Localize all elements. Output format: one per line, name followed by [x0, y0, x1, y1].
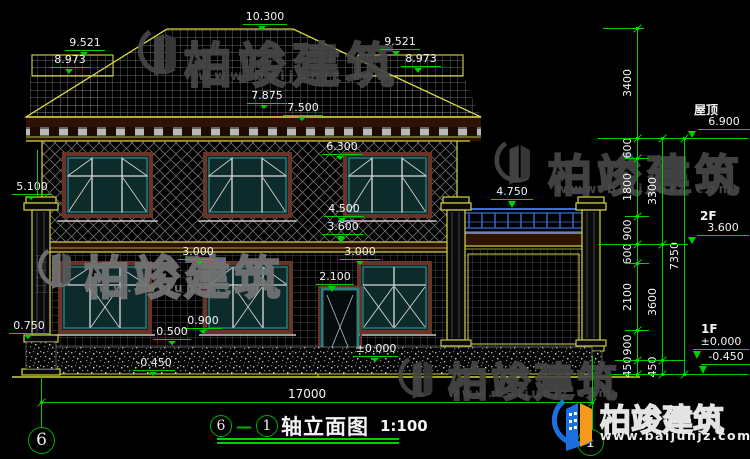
- elevation-marker: 3.600: [323, 221, 363, 235]
- elevation-value: 3.600: [323, 221, 363, 235]
- elevation-marker: 7.875: [247, 90, 287, 104]
- elevation-marker: 10.300: [243, 11, 287, 25]
- elevation-marker: -0.450: [701, 351, 750, 365]
- dim-connector-line: [598, 244, 688, 245]
- drawing-scale: 1:100: [380, 417, 428, 435]
- dim-value-vertical: 1800: [622, 165, 634, 209]
- elevation-triangle: [693, 351, 701, 359]
- dim-value-vertical: 450: [647, 345, 659, 389]
- elevation-triangle: [336, 156, 344, 160]
- elevation-triangle: [356, 261, 364, 265]
- elevation-value: 0.750: [9, 320, 49, 334]
- elevation-marker: 2.100: [316, 271, 354, 285]
- elevation-value: 9.521: [380, 36, 420, 50]
- elevation-value: 4.750: [491, 186, 533, 200]
- elevation-value: ±0.000: [693, 336, 749, 350]
- dim-value-vertical: 3600: [647, 280, 659, 324]
- elevation-marker: 8.973: [50, 54, 90, 68]
- elevation-value: 3.000: [178, 246, 218, 260]
- elevation-marker: -0.450: [133, 357, 175, 371]
- dim-connector-line: [612, 374, 748, 375]
- extension-line: [37, 150, 38, 196]
- elevation-value: 6.900: [698, 116, 750, 130]
- elevation-value: 2.100: [316, 271, 354, 285]
- elevation-triangle: [149, 372, 157, 376]
- elevation-value: 3.600: [697, 222, 749, 236]
- elevation-triangle: [392, 51, 400, 56]
- dim-value-vertical: 3400: [622, 61, 634, 105]
- elevation-triangle: [371, 358, 379, 362]
- dim-tick-dot: [40, 401, 43, 404]
- elevation-triangle: [688, 237, 696, 244]
- elevation-triangle: [65, 69, 73, 74]
- elevation-marker: 8.973: [401, 53, 441, 67]
- elevation-marker: 3.600: [697, 222, 749, 236]
- elevation-triangle: [508, 201, 516, 208]
- elevation-marker: 0.750: [9, 320, 49, 334]
- elevation-triangle: [258, 26, 266, 30]
- elevation-marker: 6.300: [322, 141, 362, 155]
- elevation-triangle: [199, 330, 207, 334]
- elevation-triangle: [328, 286, 336, 292]
- elevation-marker: ±0.000: [354, 343, 398, 357]
- elevation-value: 0.500: [153, 326, 191, 340]
- elevation-marker: 9.521: [65, 37, 105, 51]
- dim-connector-line: [625, 158, 649, 159]
- dim-value-vertical: 3300: [647, 169, 659, 213]
- brand-logo-block: 柏竣建筑 www.baijunjz.com: [548, 389, 750, 459]
- elevation-marker: 4.750: [491, 186, 533, 200]
- axis-bubble-1: 1: [256, 415, 278, 437]
- brand-logo-icon: [552, 393, 600, 455]
- elevation-marker: 9.521: [380, 36, 420, 50]
- dim-connector-line: [615, 360, 685, 361]
- elevation-value: 4.500: [324, 203, 364, 217]
- elevation-triangle: [24, 335, 32, 339]
- axis-dash: —: [236, 417, 252, 436]
- dim-connector-line: [603, 28, 643, 29]
- elevation-value: 6.300: [322, 141, 362, 155]
- elevation-value: -0.450: [133, 357, 175, 371]
- elevation-triangle: [337, 236, 345, 244]
- level-label: 2F: [700, 209, 717, 223]
- overall-dimension-line: [41, 402, 592, 403]
- dim-chain-line: [637, 28, 638, 374]
- dim-connector-line: [625, 330, 649, 331]
- elevation-value: -0.450: [701, 351, 750, 365]
- dim-chain-line: [662, 138, 663, 374]
- elevation-value: 10.300: [243, 11, 287, 25]
- axis-bubble-6: 6: [210, 415, 232, 437]
- elevation-marker: 4.500: [324, 203, 364, 217]
- elevation-triangle: [27, 196, 35, 200]
- elevation-value: ±0.000: [354, 343, 398, 357]
- level-label: 屋顶: [694, 101, 718, 118]
- axis-bubble: 6: [28, 427, 55, 454]
- elevation-marker: ±0.000: [693, 336, 749, 350]
- elevation-value: 7.500: [283, 102, 323, 116]
- elevation-marker: 0.500: [153, 326, 191, 340]
- elevation-marker: 6.900: [698, 116, 750, 130]
- drawing-title: 6 — 1 轴立面图 1:100: [210, 411, 428, 441]
- elevation-triangle: [196, 261, 204, 265]
- dim-value-vertical: 600: [622, 126, 634, 170]
- dim-chain-line: [684, 138, 685, 374]
- elevation-marker: 3.000: [340, 246, 380, 260]
- elevation-marker: 5.100: [12, 181, 52, 195]
- elevation-value: 5.100: [12, 181, 52, 195]
- elevation-value: 8.973: [50, 54, 90, 68]
- elevation-triangle: [298, 117, 306, 121]
- elevation-value: 3.000: [340, 246, 380, 260]
- elevation-triangle: [699, 366, 707, 374]
- drawing-title-text: 轴立面图: [281, 411, 369, 441]
- elevation-triangle: [414, 68, 422, 73]
- elevation-marker: 7.500: [283, 102, 323, 116]
- elevation-triangle: [260, 105, 268, 109]
- dim-value-vertical: 450: [622, 345, 634, 389]
- dim-connector-line: [625, 216, 649, 217]
- dim-value-vertical: 7350: [669, 234, 681, 278]
- dim-connector-line: [625, 263, 649, 264]
- title-underline: [217, 438, 399, 440]
- elevation-triangle: [168, 341, 176, 345]
- level-label: 1F: [701, 322, 718, 336]
- title-underline: [217, 442, 399, 444]
- dim-connector-line: [598, 138, 748, 139]
- brand-url: www.baijunjz.com: [600, 428, 750, 443]
- cad-elevation-drawing: 柏竣建筑 www.baijunjz.com 柏竣建筑 www.baijunjz.…: [0, 0, 750, 459]
- dim-value-vertical: 600: [622, 232, 634, 276]
- elevation-marker: 3.000: [178, 246, 218, 260]
- dim-value-vertical: 2100: [622, 275, 634, 319]
- elevation-value: 9.521: [65, 37, 105, 51]
- overall-dimension-value: 17000: [288, 387, 326, 401]
- elevation-value: 7.875: [247, 90, 287, 104]
- elevation-value: 8.973: [401, 53, 441, 67]
